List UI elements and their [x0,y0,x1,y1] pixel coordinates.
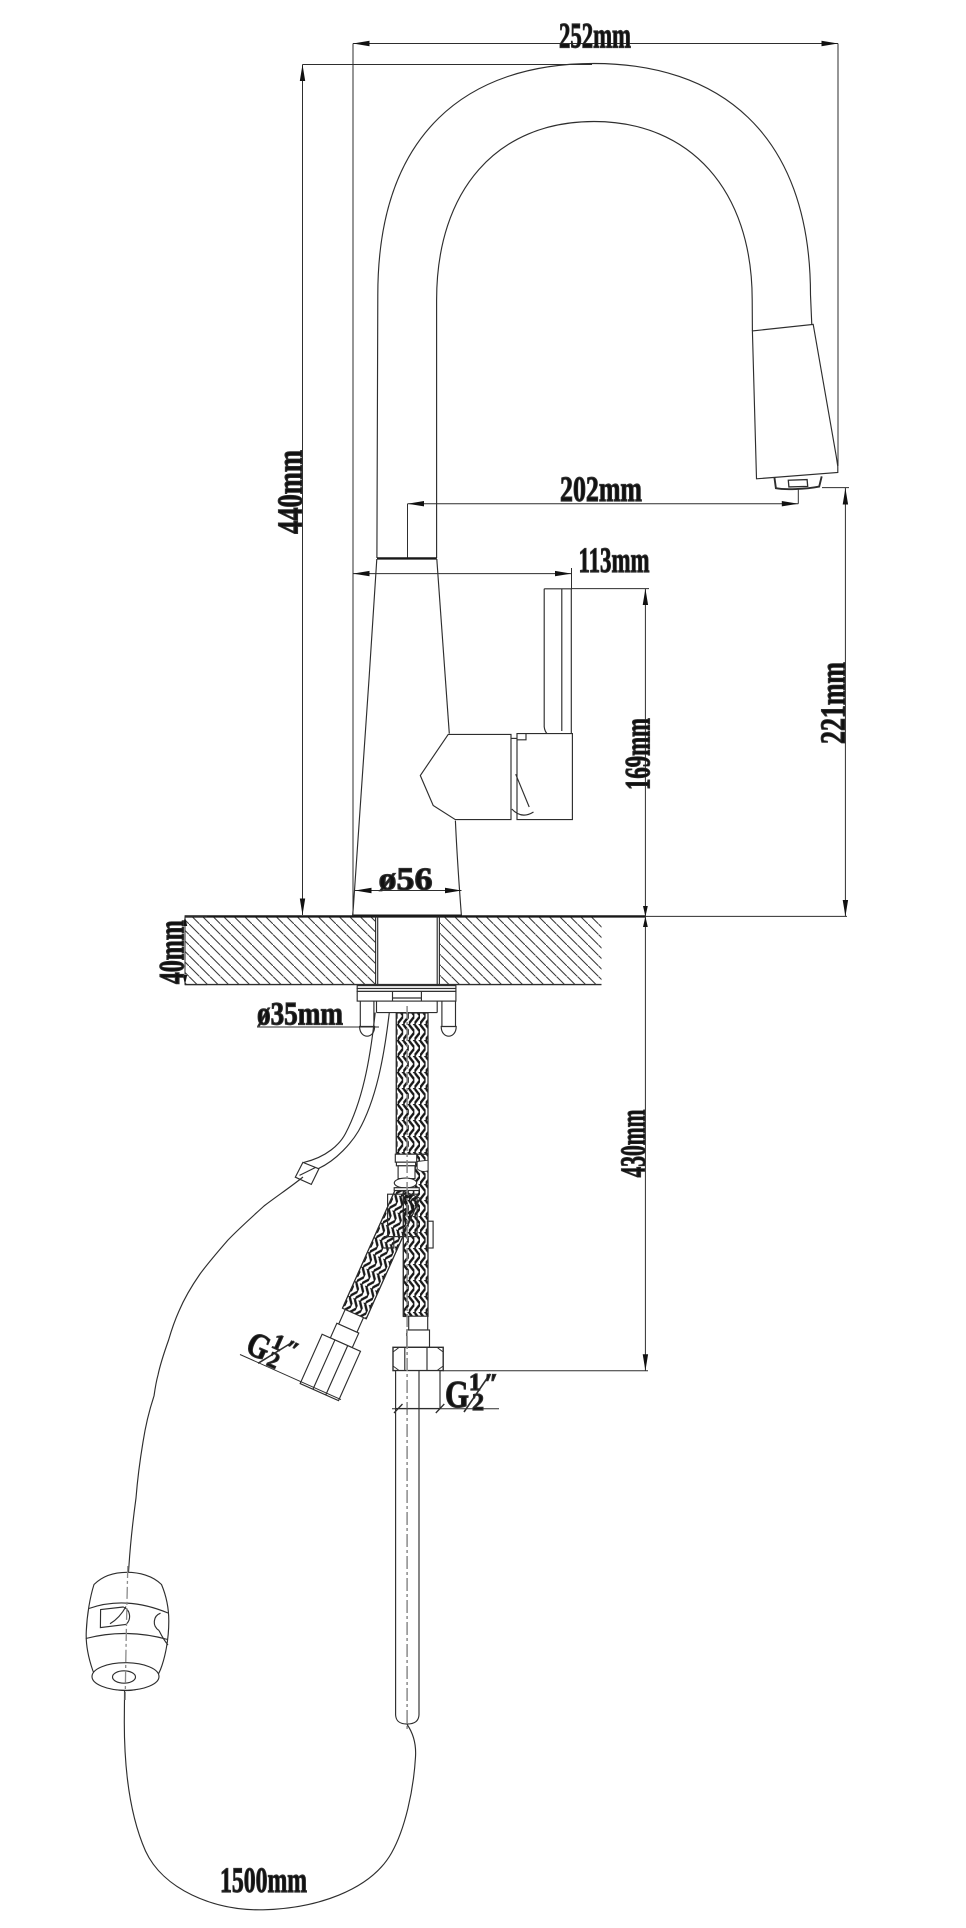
svg-text:440mm: 440mm [270,450,310,534]
svg-text:ø56: ø56 [379,861,433,897]
svg-text:2: 2 [472,1390,484,1416]
svg-text:113mm: 113mm [579,540,650,580]
svg-text:1500mm: 1500mm [220,1860,307,1900]
svg-text:252mm: 252mm [559,16,631,56]
svg-text:430mm: 430mm [613,1109,653,1177]
svg-text:″: ″ [484,1369,498,1398]
svg-text:169mm: 169mm [618,718,658,790]
svg-text:202mm: 202mm [560,469,642,509]
svg-text:40mm: 40mm [152,920,192,984]
svg-text:221mm: 221mm [813,662,853,744]
svg-text:ø35mm: ø35mm [257,997,343,1033]
